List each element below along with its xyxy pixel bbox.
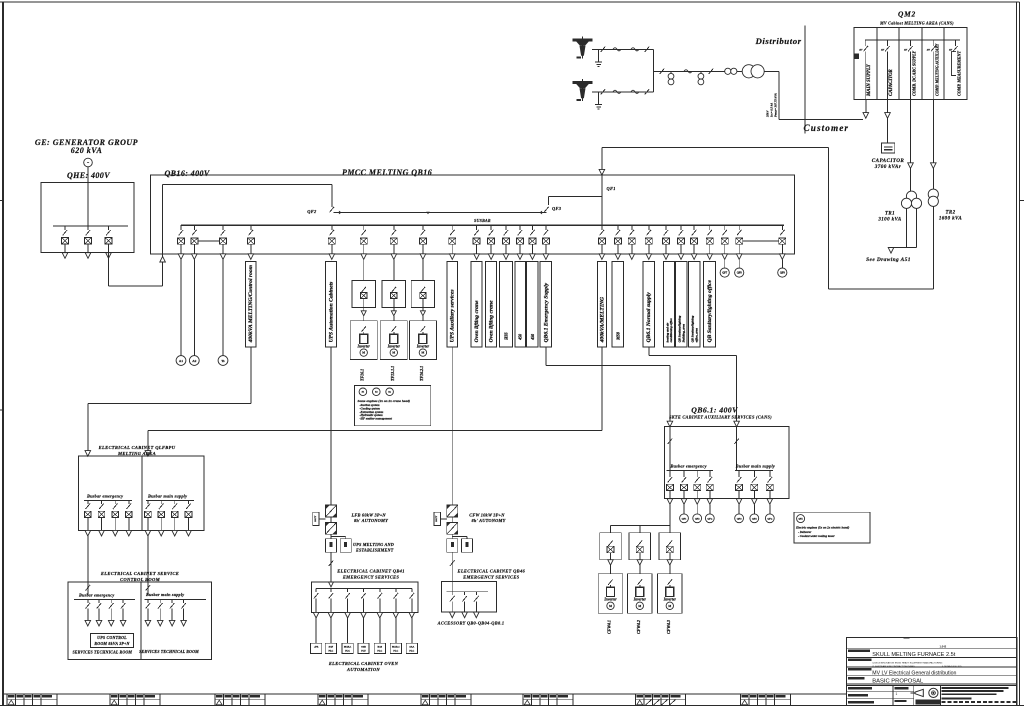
svg-text:400kVA/MELTING: 400kVA/MELTING [599, 297, 605, 343]
svg-text:Oven lifting crane: Oven lifting crane [474, 300, 480, 342]
svg-text:SUSBAR: SUSBAR [474, 218, 491, 223]
svg-text:Inverter: Inverter [663, 598, 677, 602]
svg-text:QF1: QF1 [607, 186, 616, 191]
svg-text:Building_area: Building_area [682, 324, 686, 344]
svg-text:M: M [362, 351, 365, 355]
svg-text:MV Cabinet MELTING AREA (CA: MV Cabinet MELTING AREA (CANS) [879, 21, 954, 26]
svg-text:ELECTRICAL CABINET QLFBPU: ELECTRICAL CABINET QLFBPU [98, 445, 176, 450]
svg-text:BASIC PROPOSAL: BASIC PROPOSAL [872, 679, 924, 685]
svg-text:CONTROL ROOM: CONTROL ROOM [120, 577, 161, 582]
svg-text:Electric engines (5x on 2x ele: Electric engines (5x on 2x electric hand… [795, 525, 849, 529]
svg-text:M: M [421, 351, 424, 355]
svg-text:Busbar emergency: Busbar emergency [670, 463, 707, 468]
svg-text:QB6.1 Normal supply: QB6.1 Normal supply [646, 292, 652, 343]
svg-text:Inverter: Inverter [416, 344, 430, 348]
svg-text:QF3: QF3 [737, 517, 742, 520]
svg-text:QF9: QF9 [780, 272, 786, 275]
svg-text:SAF: SAF [329, 646, 334, 649]
svg-text:UPS MELTING AND: UPS MELTING AND [353, 542, 394, 547]
svg-text:MS8: MS8 [615, 332, 620, 341]
svg-text:+PR: +PR [314, 646, 319, 649]
svg-text:Oven lifting crane: Oven lifting crane [489, 300, 495, 342]
svg-text:PLC: PLC [345, 649, 350, 652]
svg-text:PLT: PLT [361, 649, 366, 652]
svg-text:LFB 60kW 3P+N: LFB 60kW 3P+N [351, 512, 387, 517]
svg-text:Inverter: Inverter [603, 598, 617, 602]
svg-text:M: M [668, 604, 671, 608]
svg-text:SAA: SAA [409, 646, 414, 649]
svg-text:MAIN SUPPLY: MAIN SUPPLY [867, 63, 872, 97]
svg-text:A2: A2 [192, 359, 196, 363]
svg-text:3-SKCN INNOVATION ENGG HEAVY E: 3-SKCN INNOVATION ENGG HEAVY EQUIPMENT M… [872, 661, 942, 664]
svg-text:PLC: PLC [409, 649, 414, 652]
svg-text:QB16: 400V: QB16: 400V [165, 169, 210, 178]
svg-text:CFW4.3: CFW4.3 [666, 620, 671, 634]
svg-text:See Drawing A51: See Drawing A51 [866, 257, 911, 263]
svg-text:3700 kVAr: 3700 kVAr [874, 164, 902, 170]
svg-text:ELECTRICAL CABINET SERVICE: ELECTRICAL CABINET SERVICE [100, 571, 179, 576]
svg-text:QF2: QF2 [307, 209, 317, 214]
svg-text:MELTING AREA: MELTING AREA [117, 451, 156, 456]
svg-text:OSB: OSB [361, 646, 366, 649]
svg-text:MV LV Electrical General distr: MV LV Electrical General distribution [872, 670, 956, 676]
svg-text:UPS Automation Cabinets: UPS Automation Cabinets [329, 282, 335, 343]
svg-text:QF4: QF4 [752, 517, 757, 520]
svg-text:SERVICES TECHNICAL ROOM: SERVICES TECHNICAL ROOM [139, 649, 199, 654]
svg-text:ELECTRICAL CABINET QB46: ELECTRICAL CABINET QB46 [457, 568, 526, 573]
svg-text:QF1: QF1 [682, 517, 687, 520]
svg-text:450: 450 [517, 334, 522, 341]
svg-text:SERVICES TECHNICAL ROOM: SERVICES TECHNICAL ROOM [72, 650, 132, 655]
svg-text:EMERGENCY SERVICES: EMERGENCY SERVICES [462, 574, 519, 579]
svg-text:Inverter: Inverter [633, 598, 647, 602]
svg-text:M: M [392, 351, 395, 355]
svg-text:Inverter: Inverter [387, 344, 401, 348]
svg-text:Busbar emergency: Busbar emergency [86, 494, 123, 499]
svg-text:SKULL MELTING FURNACE 2.5t: SKULL MELTING FURNACE 2.5t [872, 652, 955, 658]
svg-text:ELECTRICAL CABINET QB41: ELECTRICAL CABINET QB41 [336, 568, 405, 573]
svg-text:8h' AUTONOMY: 8h' AUTONOMY [472, 518, 507, 523]
svg-text:Busbar main supply: Busbar main supply [145, 592, 184, 597]
svg-text:M: M [638, 604, 641, 608]
svg-text:AUTOMATION: AUTOMATION [346, 667, 380, 672]
svg-text:MAR.1: MAR.1 [392, 646, 400, 649]
svg-text:1:242: 1:242 [940, 644, 947, 648]
svg-text:620 kVA: 620 kVA [71, 146, 103, 155]
svg-text:MAR.1: MAR.1 [344, 646, 352, 649]
svg-text:Pmax= 387.75 kVA: Pmax= 387.75 kVA [773, 93, 777, 117]
svg-text:-HF emitter management: -HF emitter management [360, 416, 393, 420]
svg-text:BATT: BATT [314, 515, 317, 523]
svg-text:QB6.1 Emergency Supply: QB6.1 Emergency Supply [543, 282, 549, 342]
svg-text:TF16.2.1: TF16.2.1 [419, 366, 424, 381]
svg-text:CFW4.2: CFW4.2 [636, 620, 641, 634]
svg-text:8h' AUTONOMY: 8h' AUTONOMY [354, 518, 389, 523]
svg-text:Distributor: Distributor [755, 36, 802, 46]
svg-text:(1.5kW)TEAM SUBCONTRACT/DELIVE: (1.5kW)TEAM SUBCONTRACT/DELIVERS [872, 665, 915, 668]
svg-text:HSS: HSS [503, 332, 508, 341]
svg-text:TR1: TR1 [885, 212, 895, 217]
svg-text:3100 kVA: 3100 kVA [877, 218, 902, 223]
svg-text:ESTABLISHMENT: ESTABLISHMENT [355, 548, 394, 553]
svg-text:M: M [609, 604, 612, 608]
svg-text:TR2: TR2 [945, 211, 955, 216]
svg-text:QB6.1: 400V: QB6.1: 400V [691, 406, 738, 415]
svg-text:PLC: PLC [393, 649, 398, 652]
svg-text:PLC: PLC [377, 649, 382, 652]
svg-text:QHE: 400V: QHE: 400V [67, 171, 110, 180]
svg-text:1600 kVA: 1600 kVA [939, 217, 963, 222]
svg-text:QB Sanitary/lighting office: QB Sanitary/lighting office [707, 280, 713, 343]
svg-text:ELECTRICAL CABINET OVEN: ELECTRICAL CABINET OVEN [328, 661, 399, 666]
svg-text:COMP. MEASUREMENT: COMP. MEASUREMENT [956, 51, 961, 96]
svg-text:TF13.1.1: TF13.1.1 [390, 366, 395, 381]
svg-text:450: 450 [530, 334, 535, 341]
svg-text:Customer: Customer [804, 123, 850, 133]
svg-text:SKTE CABINET AUXILIARY SERVICE: SKTE CABINET AUXILIARY SERVICES (CANS) [669, 415, 772, 420]
svg-text:Busbar main supply: Busbar main supply [147, 494, 187, 499]
svg-text:CFW4.1: CFW4.1 [607, 620, 612, 634]
svg-text:PLC: PLC [329, 649, 334, 652]
svg-text:BATT: BATT [435, 515, 438, 523]
svg-text:conditioning office: conditioning office [669, 318, 673, 343]
svg-text:400kVA MELTING/Control room: 400kVA MELTING/Control room [248, 264, 254, 343]
svg-text:QFn: QFn [707, 517, 712, 520]
svg-text:QF3: QF3 [552, 206, 562, 211]
svg-text:1: 1 [896, 692, 898, 696]
svg-text:ACCESSORY QB0-QB04-QB8.1: ACCESSORY QB0-QB04-QB8.1 [437, 621, 505, 626]
svg-text:COMP. MELTING AUXILIARY: COMP. MELTING AUXILIARY [935, 43, 939, 96]
svg-text:A1: A1 [179, 359, 183, 363]
svg-text:office_area: office_area [694, 328, 698, 343]
svg-text:4-DILMA 9.400 JOD: 4-DILMA 9.400 JOD [942, 665, 962, 668]
svg-text:ROOM 8kVA 3P+N: ROOM 8kVA 3P+N [94, 641, 130, 646]
svg-text:UPS CONTROL: UPS CONTROL [97, 635, 127, 640]
svg-text:TF16.1: TF16.1 [360, 369, 365, 381]
svg-text:COMB. DC ARC SUPPLY: COMB. DC ARC SUPPLY [911, 51, 916, 96]
svg-text:Inverter: Inverter [357, 344, 371, 348]
svg-text:CFW 10kW 3P+N: CFW 10kW 3P+N [469, 512, 505, 517]
svg-text:UPS Auxiliary services: UPS Auxiliary services [450, 289, 456, 342]
svg-text:QM2: QM2 [898, 10, 916, 19]
svg-text:QF2: QF2 [695, 517, 700, 520]
svg-text:CAPACITOR: CAPACITOR [889, 68, 894, 96]
svg-text:- Coolant water cooling tower: - Coolant water cooling tower [798, 534, 836, 538]
svg-text:QF7: QF7 [722, 272, 728, 275]
svg-text:QF8: QF8 [737, 272, 743, 275]
svg-text:Busbar emergency: Busbar emergency [78, 593, 114, 598]
svg-text:BAS: BAS [377, 646, 382, 649]
svg-text:QFn: QFn [767, 517, 772, 520]
svg-text:Busbar main supply: Busbar main supply [735, 463, 775, 468]
svg-text:QFX: QFX [798, 518, 803, 520]
svg-text:EMERGENCY SERVICES: EMERGENCY SERVICES [342, 574, 399, 579]
